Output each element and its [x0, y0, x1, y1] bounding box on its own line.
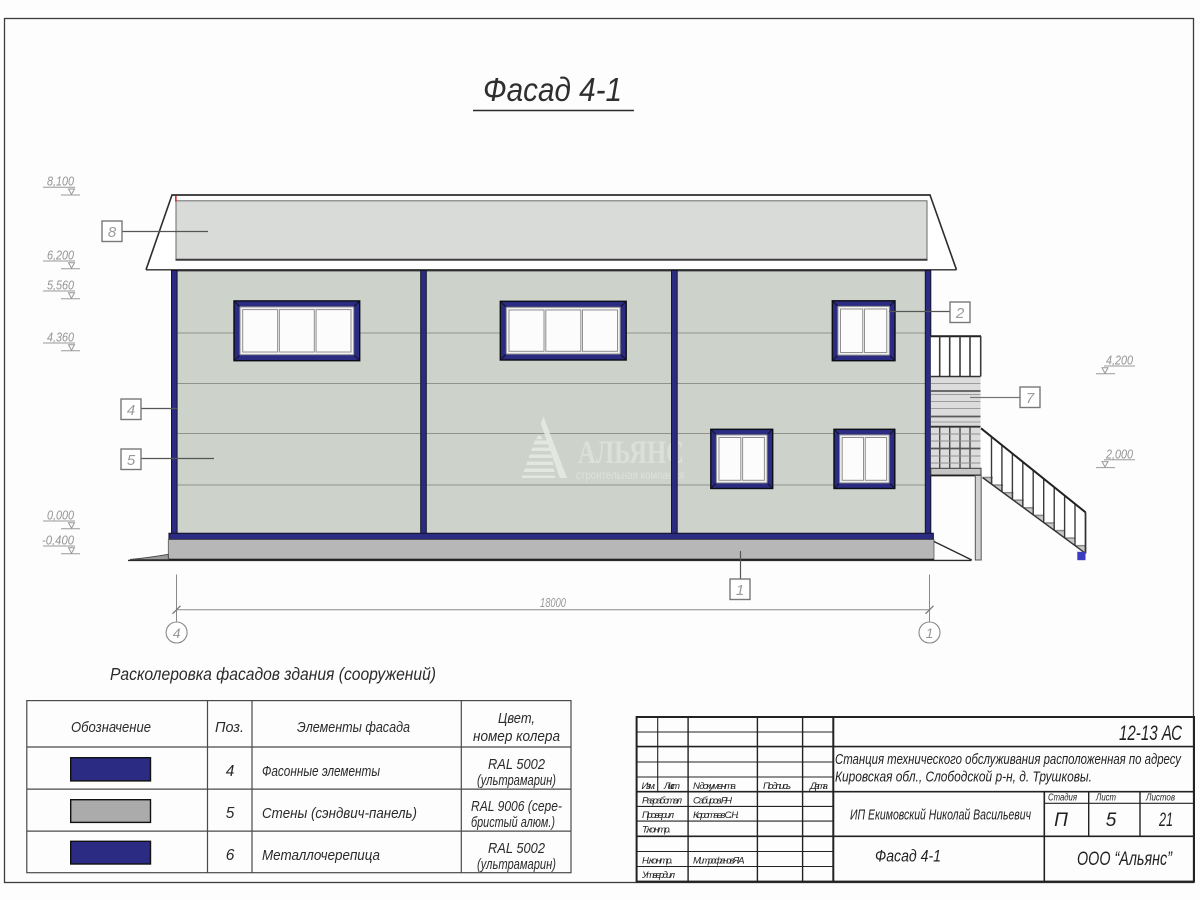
svg-text:6,200: 6,200 — [47, 249, 74, 263]
svg-text:Н.контр.: Н.контр. — [642, 856, 673, 867]
svg-text:(ультрамарин): (ультрамарин) — [477, 857, 556, 873]
svg-text:Стадия: Стадия — [1048, 793, 1078, 804]
svg-text:7: 7 — [1026, 390, 1035, 407]
svg-text:бристый алюм.): бристый алюм.) — [471, 815, 555, 831]
svg-text:2,000: 2,000 — [1105, 447, 1133, 461]
svg-text:Лист: Лист — [1095, 793, 1116, 804]
svg-text:АЛЬЯНС: АЛЬЯНС — [578, 435, 684, 471]
svg-text:Элементы фасада: Элементы фасада — [297, 720, 410, 736]
svg-text:Разработал: Разработал — [642, 796, 683, 807]
svg-text:RAL 9006 (сере-: RAL 9006 (сере- — [471, 799, 562, 815]
svg-text:ООО “Альянс”: ООО “Альянс” — [1077, 848, 1173, 870]
svg-text:5,560: 5,560 — [47, 279, 74, 293]
svg-text:5: 5 — [127, 452, 136, 469]
svg-text:RAL 5002: RAL 5002 — [488, 757, 545, 773]
svg-text:Цвет,: Цвет, — [498, 711, 535, 727]
svg-text:4: 4 — [173, 625, 181, 641]
svg-text:1: 1 — [926, 625, 934, 641]
svg-text:5: 5 — [1106, 810, 1117, 831]
svg-text:Проверил: Проверил — [642, 810, 675, 821]
svg-text:4,360: 4,360 — [47, 331, 74, 345]
svg-text:Митрофанов Я. А.: Митрофанов Я. А. — [693, 856, 745, 867]
svg-text:4,200: 4,200 — [1106, 354, 1133, 368]
svg-text:Дата: Дата — [809, 781, 828, 792]
svg-text:строительная компания: строительная компания — [576, 468, 684, 482]
svg-text:Утвердил: Утвердил — [641, 870, 676, 881]
svg-text:N документа: N документа — [693, 781, 736, 792]
svg-text:Расколеровка фасадов здания (с: Расколеровка фасадов здания (сооружений) — [110, 664, 436, 684]
svg-text:12-13 АС: 12-13 АС — [1119, 722, 1183, 745]
svg-text:Фасонные элементы: Фасонные элементы — [262, 764, 380, 780]
svg-text:Станция технического обслужива: Станция технического обслуживания распол… — [835, 751, 1182, 768]
svg-text:Металлочерепица: Металлочерепица — [262, 848, 380, 864]
svg-text:8,100: 8,100 — [47, 175, 74, 189]
svg-text:Поз.: Поз. — [215, 720, 244, 736]
svg-text:П: П — [1054, 810, 1068, 831]
svg-text:Фасад 4-1: Фасад 4-1 — [483, 71, 622, 108]
svg-text:8: 8 — [108, 224, 117, 241]
svg-text:4: 4 — [127, 402, 135, 419]
svg-text:Сабиров Р.Н: Сабиров Р.Н — [693, 796, 732, 807]
svg-text:Лист: Лист — [663, 781, 680, 792]
svg-text:Кировская обл., Слободской р-н: Кировская обл., Слободской р-н, д. Трушк… — [835, 769, 1092, 786]
svg-text:Обозначение: Обозначение — [71, 720, 151, 736]
svg-text:5: 5 — [226, 805, 235, 822]
svg-text:1: 1 — [736, 582, 744, 599]
svg-text:Листов: Листов — [1145, 793, 1175, 804]
svg-text:номер колера: номер колера — [473, 729, 560, 745]
svg-text:RAL 5002: RAL 5002 — [488, 841, 545, 857]
svg-text:2: 2 — [955, 305, 965, 322]
svg-text:Коротаев С. Н.: Коротаев С. Н. — [693, 810, 739, 821]
svg-text:6: 6 — [226, 847, 235, 864]
svg-text:Изм.: Изм. — [642, 781, 656, 792]
svg-text:18000: 18000 — [540, 595, 567, 610]
svg-text:0,000: 0,000 — [47, 509, 74, 523]
svg-text:Т.контр.: Т.контр. — [642, 825, 671, 836]
svg-text:-0,400: -0,400 — [42, 534, 74, 548]
svg-text:ИП Екимовский Николай Васильев: ИП Екимовский Николай Васильевич — [850, 807, 1031, 824]
svg-text:(ультрамарин): (ультрамарин) — [477, 773, 556, 789]
svg-text:21: 21 — [1158, 810, 1173, 831]
svg-text:Фасад 4-1: Фасад 4-1 — [875, 848, 941, 866]
svg-text:Подпись: Подпись — [763, 781, 791, 792]
svg-text:4: 4 — [226, 763, 235, 780]
svg-text:Стены (сэндвич-панель): Стены (сэндвич-панель) — [262, 806, 417, 822]
